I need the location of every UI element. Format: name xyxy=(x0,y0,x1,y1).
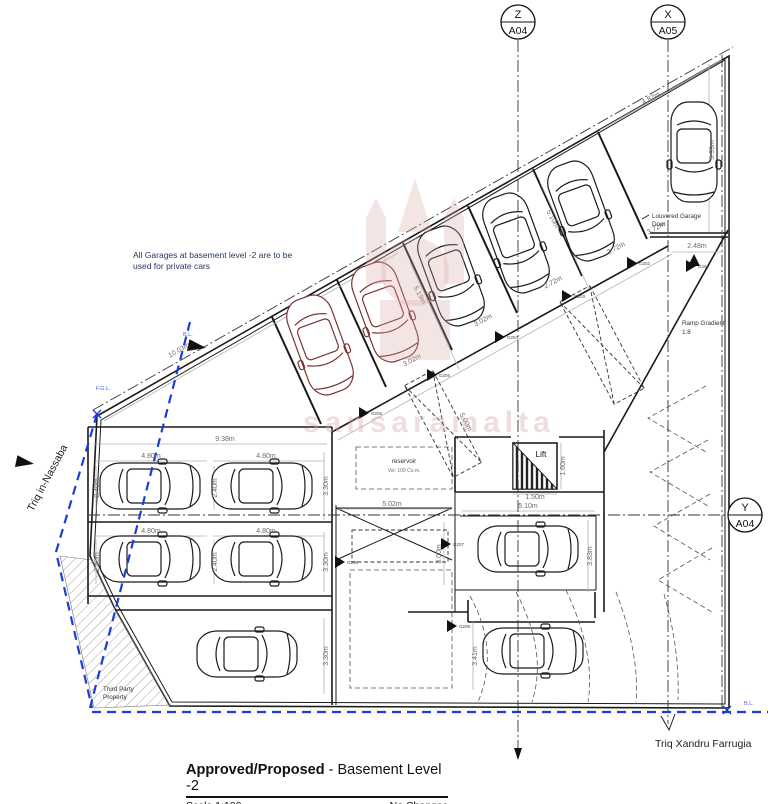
dimension-label: 3.30m xyxy=(323,552,330,572)
louvered-door-1: Louvered Garage xyxy=(652,213,702,220)
car xyxy=(483,624,583,678)
section-marker-z: Z A04 xyxy=(501,5,535,39)
dimension-label: 3.30m xyxy=(323,646,330,666)
garage-note-2: used for private cars xyxy=(133,261,210,271)
dimension-label: 2.48m xyxy=(687,243,707,250)
car xyxy=(212,532,312,586)
dimension-label: 4.80m xyxy=(141,453,161,460)
ramp-gradient-1: Ramp Gradient xyxy=(682,320,725,327)
dimension-label: 2.40m xyxy=(212,478,219,498)
garage-entry-arrow xyxy=(427,369,437,381)
dimension-label: 2.40m xyxy=(94,552,101,572)
garage-entry-arrow xyxy=(441,538,451,550)
watermark-text: sansaramalta xyxy=(303,406,555,439)
garage-number-label: G204 xyxy=(507,335,519,340)
dimension-label: 1.60m xyxy=(560,456,567,476)
title-block: Approved/Proposed - Basement Level -2 Sc… xyxy=(186,762,448,804)
application-boundary: F.G.L. B.L. B.L. xyxy=(56,322,768,714)
street-west: Triq in-Nassaba xyxy=(25,443,70,514)
third-party-label-1: Third Party xyxy=(103,686,135,693)
car xyxy=(100,532,200,586)
dimension-label: 2.40m xyxy=(212,552,219,572)
car xyxy=(212,459,312,513)
garage-number-label: G209 xyxy=(459,624,471,629)
car xyxy=(478,522,578,576)
basement-plan-drawing: Third Party Property xyxy=(0,0,781,804)
dimension-label: 3.41m xyxy=(472,646,479,666)
garage-number-label: G202 xyxy=(639,261,651,266)
car xyxy=(197,627,297,681)
drawing-title: Approved/Proposed - Basement Level -2 xyxy=(186,762,448,798)
section-lines xyxy=(88,40,727,760)
drawing-title-status: Approved/Proposed xyxy=(186,762,325,778)
bl-label-top: B.L. xyxy=(183,332,193,338)
bl-label-corner: B.L. xyxy=(744,701,754,707)
dimension-label: 2.40m xyxy=(94,478,101,498)
dimension-label: 1.50m xyxy=(525,494,545,501)
garage-number-label: G201 xyxy=(698,264,710,269)
reservoir-label: reservoir xyxy=(392,458,417,465)
marker-y-letter: Y xyxy=(741,502,749,514)
garage-number-label: G203 xyxy=(574,294,586,299)
dimension-label: 3.83m xyxy=(587,546,594,566)
lift-label: Lift xyxy=(536,450,547,459)
garage-entry-arrow xyxy=(495,331,505,343)
marker-x-sheet: A05 xyxy=(659,25,678,37)
garage-entry-arrow xyxy=(627,257,637,269)
section-marker-y: Y A04 xyxy=(728,498,762,532)
marker-z-letter: Z xyxy=(515,9,522,21)
reservoir-volume: Vol: 100 Cu.m. xyxy=(388,468,421,474)
drawing-scale: Scale 1:100 xyxy=(186,800,241,804)
dimension-label: 3.30m xyxy=(323,476,330,496)
dimension-label: 5.10m xyxy=(518,503,538,510)
marker-y-sheet: A04 xyxy=(736,518,755,530)
dimension-label: 4.80m xyxy=(256,528,276,535)
dimension-label: 9.38m xyxy=(215,436,235,443)
street-south: Triq Xandru Farrugia xyxy=(655,738,752,750)
dimension-lines xyxy=(93,60,722,694)
garage-number-label: G208 xyxy=(347,560,359,565)
section-marker-x: X A05 xyxy=(651,5,685,39)
garage-note-1: All Garages at basement level -2 are to … xyxy=(133,250,292,260)
garage-number-label: G207 xyxy=(453,542,465,547)
dimension-label: 5.02m xyxy=(382,501,402,508)
floor-plan-canvas: Third Party Property xyxy=(0,0,781,804)
car xyxy=(100,459,200,513)
fgl-label: F.G.L. xyxy=(96,386,111,392)
lift: Lift xyxy=(513,443,557,489)
garage-number-label: G205 xyxy=(439,373,451,378)
marker-z-sheet: A04 xyxy=(509,25,528,37)
dimension-label: 4.80m xyxy=(141,528,161,535)
third-party-label-2: Property xyxy=(103,694,128,701)
marker-x-letter: X xyxy=(664,9,672,21)
ramp-gradient-2: 1:8 xyxy=(682,329,691,336)
dimension-label: 4.80m xyxy=(256,453,276,460)
dimension-label: 5.99m xyxy=(709,140,716,160)
drawing-changes: No Changes xyxy=(390,800,448,804)
